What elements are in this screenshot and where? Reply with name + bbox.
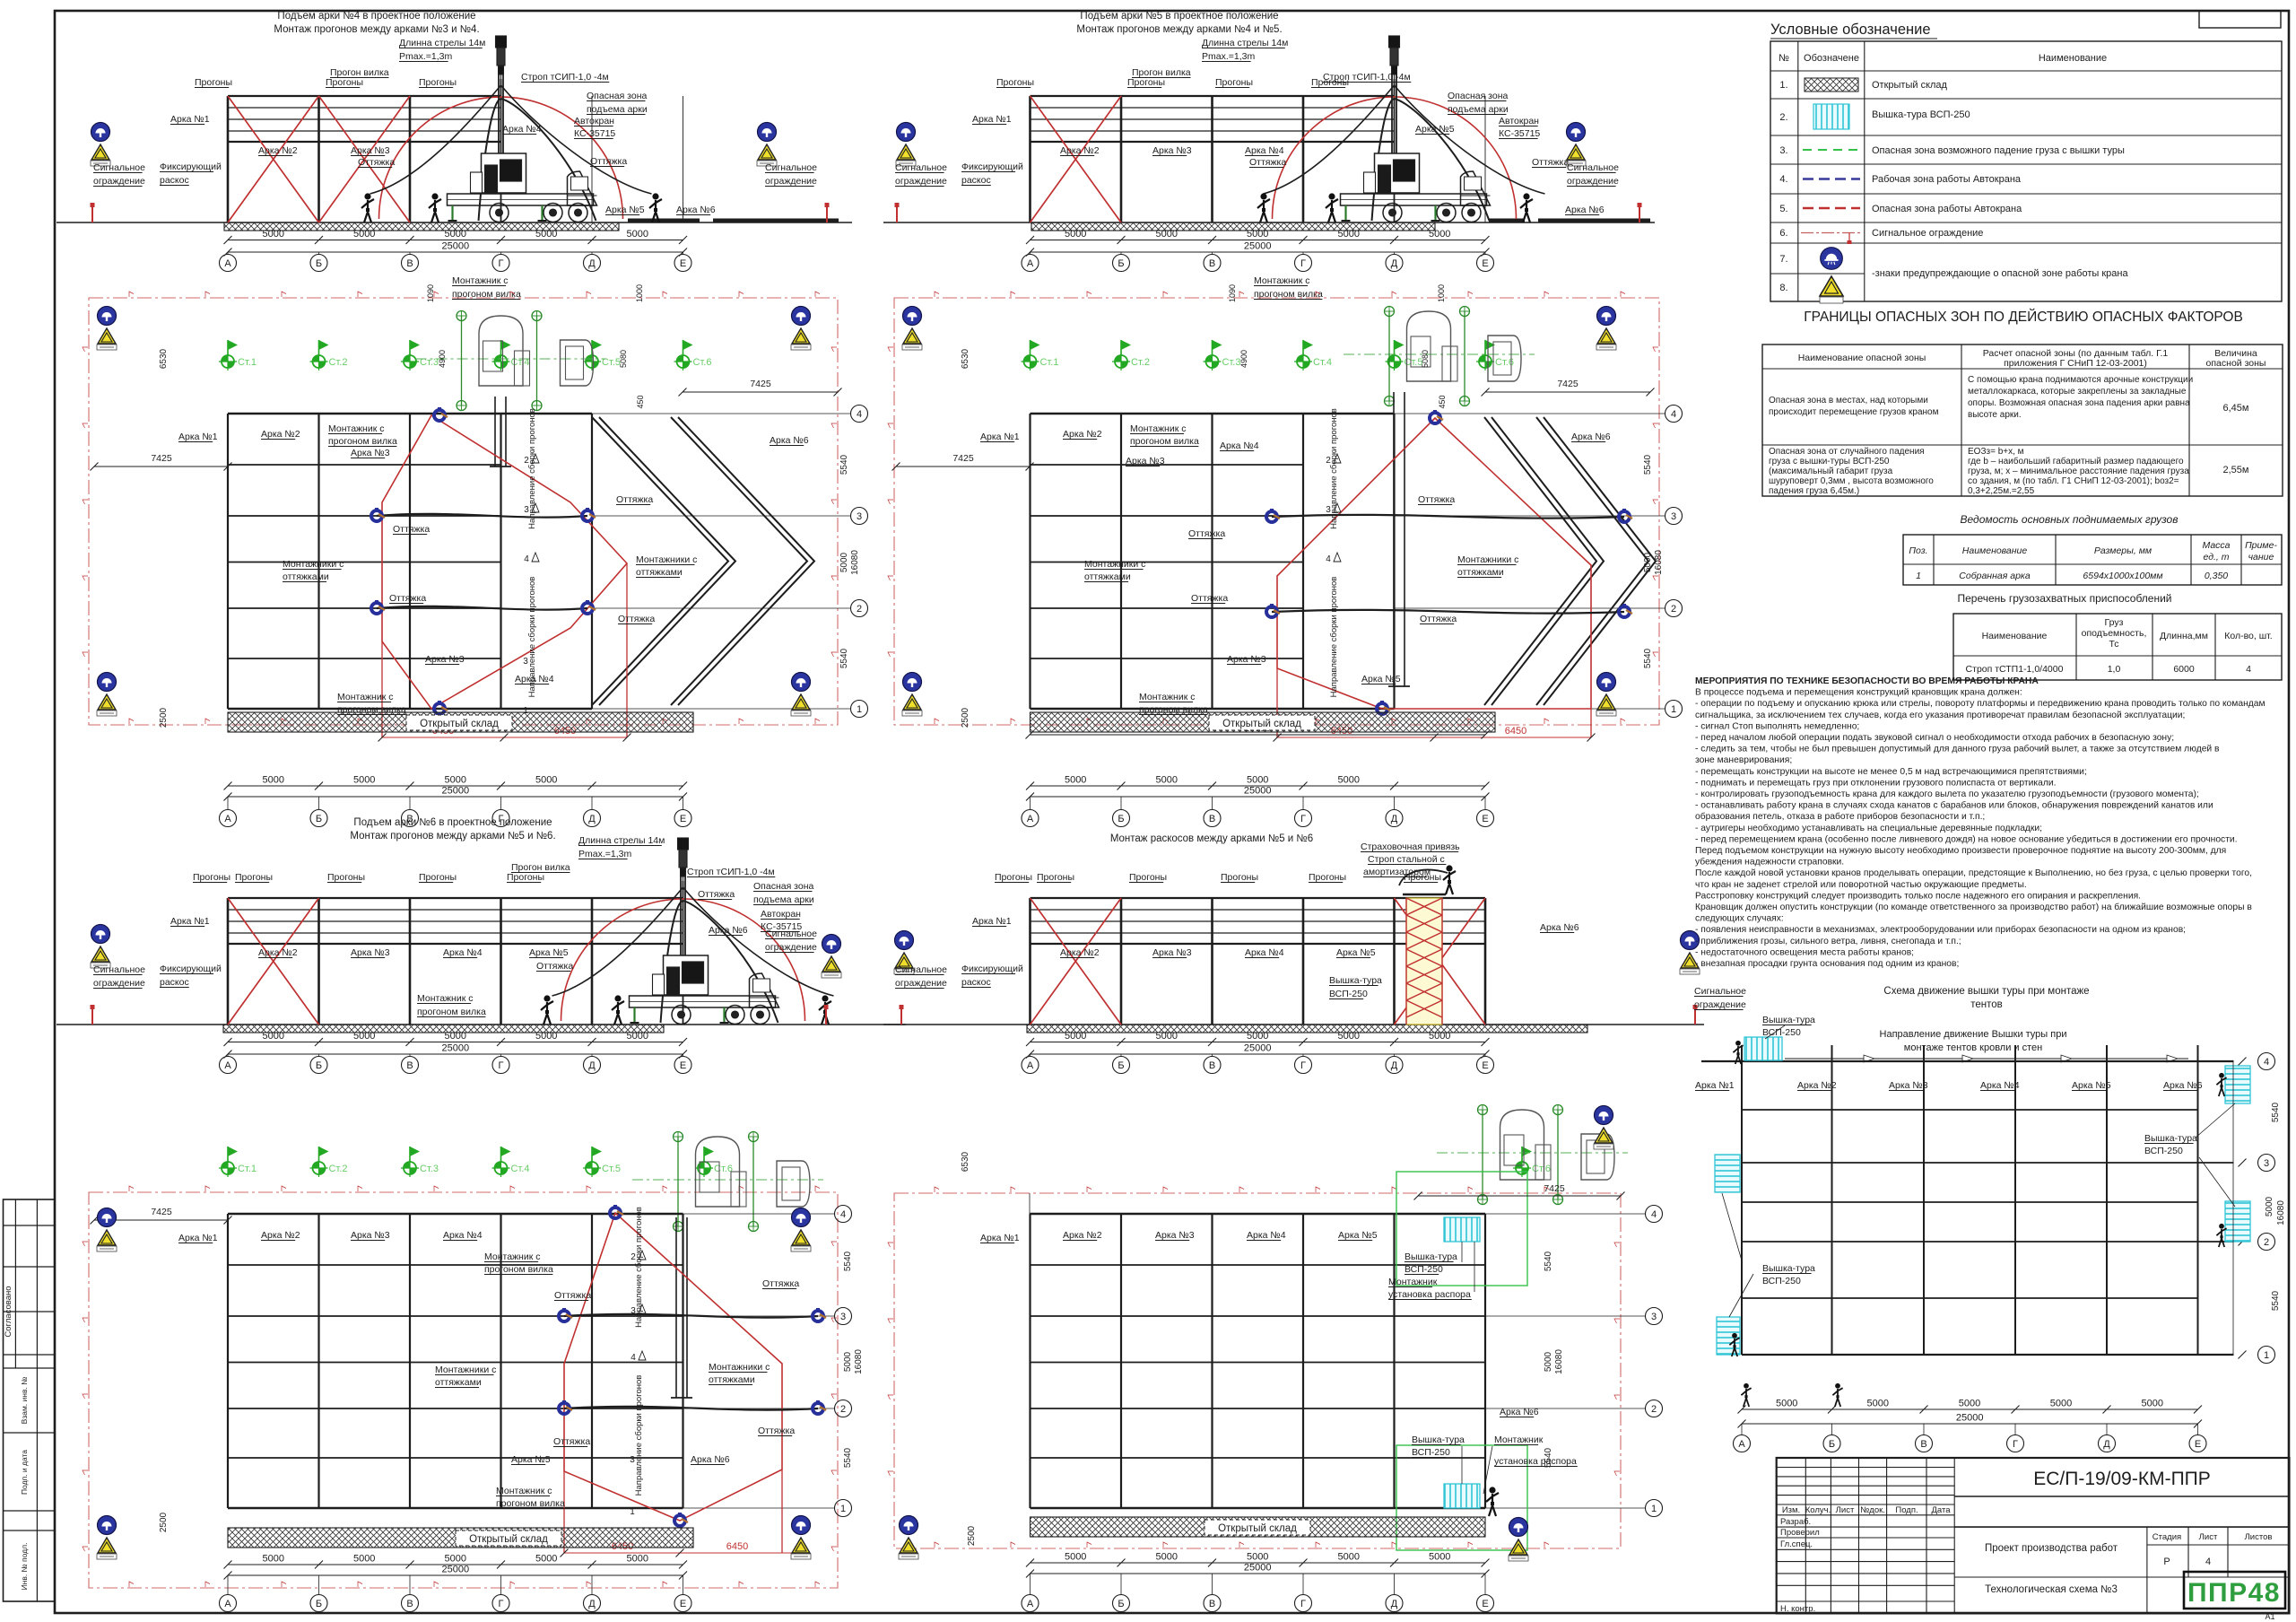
svg-text:Арка №1: Арка №1 — [178, 432, 218, 442]
svg-text:Прогоны: Прогоны — [995, 872, 1032, 883]
svg-text:оттяжками: оттяжками — [636, 567, 683, 578]
svg-text:5000: 5000 — [1065, 1031, 1086, 1042]
svg-text:Оттяжка: Оттяжка — [590, 156, 627, 167]
svg-text:ППР48: ППР48 — [2187, 1578, 2281, 1608]
svg-text:Арка №3: Арка №3 — [1152, 947, 1192, 958]
svg-text:Разраб.: Разраб. — [1780, 1517, 1811, 1527]
svg-text:5000: 5000 — [1776, 1399, 1797, 1409]
svg-text:Б: Б — [1118, 1060, 1124, 1071]
svg-text:Ст.1: Ст.1 — [1040, 357, 1059, 368]
svg-text:Д: Д — [588, 1060, 596, 1071]
svg-text:установка распора: установка распора — [1388, 1289, 1471, 1300]
svg-text:Pmax.=1,3m: Pmax.=1,3m — [1202, 51, 1255, 62]
svg-text:Арка №5: Арка №5 — [1336, 947, 1376, 958]
svg-text:5000: 5000 — [1338, 1031, 1360, 1042]
svg-text:ограждение: ограждение — [895, 176, 947, 187]
svg-text:Опасная зона: Опасная зона — [753, 881, 814, 892]
svg-text:16080: 16080 — [2276, 1200, 2286, 1225]
svg-text:Арка №2: Арка №2 — [261, 429, 300, 440]
svg-text:-знаки предупреждающие о опасн: -знаки предупреждающие о опасной зоне ра… — [1872, 268, 2128, 279]
svg-text:Автокран: Автокран — [574, 116, 614, 126]
svg-text:Ст.4: Ст.4 — [511, 1164, 530, 1174]
svg-text:Подп.: Подп. — [1895, 1505, 1918, 1515]
svg-text:опоры. Возможная опасная зона: опоры. Возможная опасная зона падения ар… — [1968, 398, 2190, 408]
svg-text:Арка №6: Арка №6 — [676, 205, 716, 215]
svg-text:Схема движение вышки туры при: Схема движение вышки туры при монтаже — [1883, 986, 2089, 997]
svg-text:Арка №1: Арка №1 — [178, 1233, 218, 1243]
svg-text:5000: 5000 — [1429, 229, 1450, 240]
svg-text:16080: 16080 — [1554, 1349, 1564, 1374]
svg-text:4: 4 — [2205, 1557, 2211, 1567]
svg-text:- недостаточного освещени: - недостаточного освещения места работы … — [1695, 946, 1914, 957]
svg-text:4: 4 — [2246, 664, 2251, 675]
svg-text:металлокаркаса, которые закреп: металлокаркаса, которые закреплены за за… — [1968, 387, 2187, 397]
svg-text:груза, м; x – минимальное расс: груза, м; x – минимальное расстояние пад… — [1968, 467, 2189, 476]
svg-text:Прогоны: Прогоны — [1037, 872, 1074, 883]
svg-text:450: 450 — [1438, 395, 1447, 408]
svg-text:Б: Б — [1118, 814, 1124, 824]
svg-text:Прогоны: Прогоны — [1309, 872, 1346, 883]
svg-text:Арка №4: Арка №4 — [1245, 947, 1284, 958]
svg-text:Сигнальное: Сигнальное — [93, 964, 145, 975]
svg-text:2500: 2500 — [159, 707, 169, 728]
svg-text:С помощью крана поднимаются ар: С помощью крана поднимаются арочные конс… — [1968, 375, 2193, 385]
svg-text:Арка №1: Арка №1 — [1695, 1080, 1735, 1091]
svg-text:А: А — [1738, 1439, 1745, 1450]
svg-text:Монтажник с: Монтажник с — [496, 1486, 552, 1496]
svg-text:25000: 25000 — [442, 1043, 470, 1054]
svg-text:Д: Д — [588, 1599, 596, 1609]
svg-text:5000: 5000 — [535, 1554, 557, 1565]
svg-text:3: 3 — [1651, 1312, 1657, 1322]
svg-text:25000: 25000 — [442, 786, 470, 797]
svg-text:Прогоны: Прогоны — [1221, 872, 1258, 883]
svg-text:5540: 5540 — [2271, 1102, 2281, 1122]
svg-text:высоте арки.: высоте арки. — [1968, 410, 2022, 420]
svg-text:2: 2 — [840, 1404, 846, 1415]
svg-text:КС-35715: КС-35715 — [1499, 128, 1540, 139]
svg-text:Арка №1: Арка №1 — [170, 916, 210, 927]
svg-text:Г: Г — [499, 258, 504, 269]
svg-text:Рабочая зона работы Автокрана: Рабочая зона работы Автокрана — [1872, 174, 2022, 185]
svg-text:2500: 2500 — [159, 1512, 169, 1532]
svg-text:Ст.2: Ст.2 — [329, 1164, 348, 1174]
svg-text:4: 4 — [524, 554, 529, 564]
svg-text:Д: Д — [1391, 1060, 1398, 1071]
svg-text:Арка №2: Арка №2 — [1063, 429, 1102, 440]
svg-text:Сигнальное: Сигнальное — [765, 162, 817, 173]
svg-text:Арка №3: Арка №3 — [351, 448, 390, 458]
svg-text:Прогоны: Прогоны — [1215, 77, 1253, 88]
svg-text:Оттяжка: Оттяжка — [1191, 593, 1228, 604]
svg-text:Оттяжка: Оттяжка — [393, 524, 430, 535]
svg-text:Арка №5: Арка №5 — [1415, 124, 1455, 135]
svg-text:Арка №3: Арка №3 — [1152, 145, 1192, 156]
svg-text:Проверил: Проверил — [1780, 1528, 1820, 1538]
svg-text:следующих случаях:: следующих случаях: — [1695, 914, 1784, 924]
svg-text:Открытый склад: Открытый склад — [1872, 80, 1948, 91]
svg-text:Арка №1: Арка №1 — [972, 916, 1012, 927]
svg-text:Е: Е — [680, 1060, 686, 1071]
svg-text:Д: Д — [2103, 1439, 2110, 1450]
svg-text:Вышка-тура: Вышка-тура — [2144, 1133, 2197, 1144]
svg-text:Арка №6: Арка №6 — [1500, 1407, 1539, 1417]
svg-text:7425: 7425 — [1557, 379, 1578, 389]
svg-text:ограждение: ограждение — [765, 942, 817, 953]
svg-text:0,350: 0,350 — [2205, 571, 2228, 581]
svg-text:4: 4 — [631, 1353, 636, 1363]
svg-text:зоне маневрирования;: зоне маневрирования; — [1695, 755, 1792, 765]
svg-text:25000: 25000 — [1244, 1043, 1272, 1054]
svg-text:Прогоны: Прогоны — [327, 872, 365, 883]
svg-text:Прогон вилка: Прогон вилка — [511, 862, 570, 873]
svg-text:Арка №3: Арка №3 — [1889, 1080, 1928, 1091]
svg-text:Оттяжка: Оттяжка — [618, 614, 655, 624]
svg-text:1: 1 — [2264, 1350, 2269, 1361]
svg-text:Сигнальное ограждение: Сигнальное ограждение — [1872, 228, 1983, 239]
svg-text:5000: 5000 — [1156, 1552, 1178, 1563]
svg-text:3: 3 — [524, 505, 529, 515]
svg-text:2: 2 — [2264, 1237, 2269, 1248]
svg-text:А: А — [1027, 1599, 1034, 1609]
svg-text:5000: 5000 — [535, 775, 557, 786]
svg-text:5000: 5000 — [2265, 1196, 2274, 1216]
svg-text:5000: 5000 — [1338, 775, 1360, 786]
svg-text:1: 1 — [1671, 704, 1676, 715]
svg-text:6594х1000х100мм: 6594х1000х100мм — [2083, 571, 2162, 581]
svg-text:раскос: раскос — [160, 175, 189, 186]
svg-text:раскос: раскос — [961, 175, 991, 186]
svg-text:А: А — [1027, 814, 1034, 824]
svg-text:Монтажник с: Монтажник с — [1254, 275, 1309, 286]
svg-text:Сигнальное: Сигнальное — [1694, 986, 1746, 997]
svg-text:Вышка-тура: Вышка-тура — [1405, 1251, 1457, 1262]
svg-text:прогоном вилка: прогоном вилка — [484, 1264, 553, 1275]
svg-text:4: 4 — [1651, 1209, 1657, 1220]
svg-text:Арка №2: Арка №2 — [1063, 1230, 1102, 1241]
svg-text:Монтаж раскосов между арками №: Монтаж раскосов между арками №5 и №6 — [1110, 833, 1313, 844]
svg-text:Сигнальное: Сигнальное — [895, 964, 947, 975]
svg-text:Изм.: Изм. — [1782, 1505, 1800, 1515]
svg-text:Монтажник с: Монтажник с — [484, 1251, 540, 1262]
svg-text:5000: 5000 — [1156, 229, 1178, 240]
svg-text:Прогоны: Прогоны — [996, 77, 1034, 88]
svg-text:ВСП-250: ВСП-250 — [2144, 1146, 2183, 1156]
svg-text:Оттяжка: Оттяжка — [553, 1436, 590, 1447]
svg-text:3: 3 — [857, 511, 862, 522]
svg-text:16080: 16080 — [850, 550, 860, 575]
svg-text:Сигнальное: Сигнальное — [895, 162, 947, 173]
svg-text:Арка №3: Арка №3 — [351, 145, 390, 156]
svg-text:Оттяжка: Оттяжка — [698, 889, 735, 900]
svg-text:3: 3 — [840, 1312, 846, 1322]
svg-text:25000: 25000 — [442, 1565, 470, 1575]
svg-text:КС-35715: КС-35715 — [574, 128, 615, 139]
svg-text:приложения Г СНиП 12-03-2001): приложения Г СНиП 12-03-2001) — [2004, 358, 2147, 369]
svg-text:7425: 7425 — [151, 453, 172, 464]
svg-text:происходит перемещение грузов: происходит перемещение грузов краном — [1769, 407, 1939, 417]
svg-text:В процессе подъема и перемещен: В процессе подъема и перемещения констру… — [1695, 688, 2022, 698]
svg-text:Прогоны: Прогоны — [419, 77, 457, 88]
svg-text:6530: 6530 — [961, 348, 970, 369]
svg-text:5000: 5000 — [445, 1031, 466, 1042]
svg-text:Монтажник с: Монтажник с — [1130, 423, 1186, 434]
svg-text:В: В — [1209, 1060, 1215, 1071]
svg-text:Условные обозначение: Условные обозначение — [1770, 22, 1931, 38]
svg-text:подъема арки: подъема арки — [753, 894, 814, 905]
svg-text:5000: 5000 — [1065, 229, 1086, 240]
svg-text:Е: Е — [680, 814, 686, 824]
svg-text:Д: Д — [1391, 258, 1398, 269]
svg-text:амортизатором: амортизатором — [1363, 867, 1431, 877]
svg-text:4: 4 — [2264, 1057, 2269, 1068]
svg-text:Взам. инв. №: Взам. инв. № — [20, 1377, 29, 1425]
svg-text:ограждение: ограждение — [93, 176, 145, 187]
svg-text:5000: 5000 — [1544, 1351, 1553, 1372]
svg-text:Арка №2: Арка №2 — [258, 947, 298, 958]
svg-text:В: В — [1209, 1599, 1215, 1609]
svg-text:Арка №6: Арка №6 — [2163, 1080, 2203, 1091]
svg-text:- контролировать грузопод: - контролировать грузоподъемность крана … — [1695, 789, 2199, 799]
svg-text:6450: 6450 — [726, 1541, 748, 1552]
svg-text:Направление сборки прогонов: Направление сборки прогонов — [1329, 577, 1339, 698]
svg-text:5000: 5000 — [1156, 1031, 1178, 1042]
svg-text:Арка №6: Арка №6 — [709, 925, 748, 936]
svg-text:оттяжками: оттяжками — [283, 571, 329, 582]
svg-text:А: А — [224, 1599, 231, 1609]
svg-text:1090: 1090 — [426, 284, 435, 302]
svg-text:ВСП-250: ВСП-250 — [1329, 989, 1368, 999]
svg-text:Арка №1: Арка №1 — [170, 114, 210, 125]
svg-text:Арка №3: Арка №3 — [351, 947, 390, 958]
svg-text:убеждения надежности страповки: убеждения надежности страповки. — [1695, 857, 1844, 868]
svg-text:- перед перемещением кран: - перед перемещением крана (особенно пос… — [1695, 833, 2238, 844]
svg-text:6530: 6530 — [159, 348, 169, 369]
svg-text:раскос: раскос — [160, 977, 189, 988]
svg-text:В: В — [1920, 1439, 1926, 1450]
svg-text:5000: 5000 — [353, 1031, 375, 1042]
svg-text:раскос: раскос — [961, 977, 991, 988]
svg-text:ограждение: ограждение — [93, 978, 145, 989]
svg-text:7.: 7. — [1779, 254, 1787, 265]
svg-text:Арка №2: Арка №2 — [261, 1230, 300, 1241]
svg-text:ограждение: ограждение — [895, 978, 947, 989]
svg-text:Б: Б — [1118, 1599, 1124, 1609]
svg-text:Опасная зона от случайного пад: Опасная зона от случайного падения — [1769, 447, 1925, 457]
svg-text:Арка №3: Арка №3 — [1155, 1230, 1195, 1241]
svg-text:5000: 5000 — [1338, 1552, 1360, 1563]
svg-text:Сигнальное: Сигнальное — [765, 929, 817, 939]
svg-text:Е: Е — [2195, 1439, 2201, 1450]
svg-text:Е: Е — [680, 1599, 686, 1609]
svg-text:Монтаж прогонов между арками №: Монтаж прогонов между арками №3 и №4. — [274, 24, 479, 35]
svg-text:450: 450 — [636, 395, 645, 408]
svg-text:А: А — [224, 1060, 231, 1071]
svg-text:В: В — [406, 814, 413, 824]
svg-text:Оттяжка: Оттяжка — [554, 1290, 591, 1301]
svg-text:Вышка-тура: Вышка-тура — [1412, 1435, 1465, 1445]
svg-text:Арка №6: Арка №6 — [770, 435, 809, 446]
svg-text:Оттяжка: Оттяжка — [389, 593, 426, 604]
svg-text:2,55м: 2,55м — [2223, 465, 2249, 475]
svg-text:ВСП-250: ВСП-250 — [1405, 1264, 1443, 1275]
svg-text:Оттяжка: Оттяжка — [1420, 614, 1457, 624]
svg-text:Арка №4: Арка №4 — [1980, 1080, 2020, 1091]
svg-text:Опасная зона: Опасная зона — [1448, 91, 1509, 101]
svg-text:Согласовано: Согласовано — [4, 1286, 13, 1337]
svg-text:Р: Р — [2163, 1557, 2170, 1567]
svg-text:Г: Г — [499, 1599, 504, 1609]
svg-text:7425: 7425 — [952, 453, 974, 464]
svg-text:Арка №5: Арка №5 — [605, 205, 645, 215]
svg-text:Арка №3: Арка №3 — [1126, 456, 1165, 467]
svg-text:падения груза 6,45м.): падения груза 6,45м.) — [1769, 486, 1859, 496]
svg-text:прогоном вилка: прогоном вилка — [417, 1007, 486, 1017]
svg-text:Арка №1: Арка №1 — [980, 1233, 1020, 1243]
svg-text:6.: 6. — [1779, 228, 1787, 239]
svg-text:5000: 5000 — [445, 775, 466, 786]
svg-text:4: 4 — [857, 409, 862, 420]
svg-text:В: В — [1209, 814, 1215, 824]
svg-text:Е: Е — [1482, 1599, 1488, 1609]
svg-text:Монтажник с: Монтажник с — [1139, 692, 1195, 702]
svg-text:1: 1 — [840, 1504, 846, 1514]
svg-text:Приме-: Приме- — [2245, 540, 2277, 551]
svg-text:4.: 4. — [1779, 174, 1787, 185]
svg-text:Монтажники с: Монтажники с — [1457, 554, 1518, 565]
svg-text:Открытый склад: Открытый склад — [469, 1534, 548, 1545]
svg-text:Монтажники с: Монтажники с — [636, 554, 697, 565]
svg-text:5540: 5540 — [843, 1251, 853, 1271]
svg-text:Pmax.=1,3m: Pmax.=1,3m — [578, 849, 631, 859]
svg-text:прогоном вилка: прогоном вилка — [1139, 704, 1208, 715]
svg-text:Монтажник с: Монтажник с — [328, 423, 384, 434]
svg-text:5000: 5000 — [263, 229, 284, 240]
svg-text:5080: 5080 — [1421, 350, 1430, 368]
svg-text:16080: 16080 — [1654, 550, 1664, 575]
svg-text:ед., т: ед., т — [2203, 552, 2229, 562]
svg-text:5080: 5080 — [619, 350, 628, 368]
svg-text:5000: 5000 — [2050, 1399, 2072, 1409]
svg-text:Ст.4: Ст.4 — [1313, 357, 1332, 368]
svg-text:5000: 5000 — [1247, 775, 1268, 786]
svg-text:7425: 7425 — [151, 1207, 172, 1217]
svg-text:- появления неисправности: - появления неисправности в механизмах, … — [1695, 924, 2186, 935]
svg-text:Оттяжка: Оттяжка — [1532, 157, 1569, 168]
svg-text:Фиксирующий: Фиксирующий — [961, 964, 1023, 974]
svg-text:Арка №4: Арка №4 — [443, 1230, 483, 1241]
svg-text:2: 2 — [524, 456, 529, 466]
svg-text:- следить за тем, чтобы н: - следить за тем, чтобы не был превышен … — [1695, 744, 2220, 754]
svg-text:Г: Г — [1300, 814, 1306, 824]
svg-text:Прогоны: Прогоны — [235, 872, 273, 883]
svg-text:- перемещать конструкции: - перемещать конструкции на высоте не ме… — [1695, 767, 2087, 777]
svg-text:Кол-во, шт.: Кол-во, шт. — [2224, 631, 2272, 641]
svg-text:Б: Б — [316, 814, 322, 824]
svg-text:Длинна стрелы 14м: Длинна стрелы 14м — [399, 38, 485, 48]
svg-text:Ст.1: Ст.1 — [238, 1164, 257, 1174]
svg-text:Поз.: Поз. — [1909, 545, 1927, 556]
svg-text:Прогоны: Прогоны — [419, 872, 457, 883]
svg-text:Наименование: Наименование — [2039, 53, 2107, 64]
svg-text:(максимальный габарит груза: (максимальный габарит груза — [1769, 466, 1893, 476]
svg-text:Оттяжка: Оттяжка — [616, 494, 653, 505]
svg-text:Арка №5: Арка №5 — [2072, 1080, 2111, 1091]
svg-text:Длинна стрелы 14м: Длинна стрелы 14м — [578, 835, 665, 846]
svg-text:- приближения грозы, силь: - приближения грозы, сильного ветра, лив… — [1695, 936, 1961, 946]
svg-text:5000: 5000 — [1959, 1399, 1980, 1409]
svg-text:Наименование: Наименование — [1962, 545, 2028, 556]
svg-text:Подп. и дата: Подп. и дата — [20, 1450, 29, 1495]
svg-text:Направление сборки прогонов: Направление сборки прогонов — [634, 1375, 644, 1496]
svg-text:Б: Б — [316, 258, 322, 269]
svg-text:4: 4 — [1326, 554, 1331, 564]
svg-text:подъема арки: подъема арки — [587, 104, 648, 115]
svg-text:Прогоны: Прогоны — [195, 77, 232, 88]
svg-text:Б: Б — [316, 1060, 322, 1071]
svg-text:со здания, м (по табл. Г1 СНиП: со здания, м (по табл. Г1 СНиП 12-03-200… — [1968, 475, 2179, 486]
svg-text:Проект производства работ: Проект производства работ — [1985, 1543, 2118, 1554]
svg-text:Опасная зона возможного падени: Опасная зона возможного падение груза с … — [1872, 145, 2125, 156]
svg-text:5000: 5000 — [1247, 1031, 1268, 1042]
svg-text:Ст.5: Ст.5 — [602, 1164, 621, 1174]
svg-text:Арка №5: Арка №5 — [1338, 1230, 1378, 1241]
svg-text:5000: 5000 — [1247, 229, 1268, 240]
svg-text:прогоном вилка: прогоном вилка — [328, 436, 397, 447]
svg-text:Наименование опасной зоны: Наименование опасной зоны — [1798, 353, 1926, 363]
svg-text:7425: 7425 — [1544, 1183, 1565, 1194]
svg-text:Фиксирующий: Фиксирующий — [160, 964, 222, 974]
svg-text:Подъем арки №5 в проектное пол: Подъем арки №5 в проектное положение — [1080, 11, 1278, 22]
svg-text:5000: 5000 — [535, 229, 557, 240]
svg-text:3: 3 — [1326, 505, 1331, 515]
svg-text:Длинна,мм: Длинна,мм — [2160, 631, 2208, 641]
svg-text:5000: 5000 — [1429, 1031, 1450, 1042]
svg-text:В: В — [406, 1599, 413, 1609]
svg-text:Монтажники с: Монтажники с — [1084, 559, 1145, 570]
svg-text:ВСП-250: ВСП-250 — [1762, 1276, 1801, 1286]
svg-text:Монтажник с: Монтажник с — [452, 275, 508, 286]
svg-text:Технологическая схема №3: Технологическая схема №3 — [1985, 1584, 2118, 1595]
svg-text:ВСП-250: ВСП-250 — [1412, 1447, 1450, 1458]
svg-text:Оттяжка: Оттяжка — [1418, 494, 1455, 505]
svg-text:№док.: №док. — [1860, 1505, 1885, 1515]
svg-text:Оттяжка: Оттяжка — [758, 1426, 795, 1436]
svg-text:Стадия: Стадия — [2152, 1532, 2181, 1542]
svg-text:5000: 5000 — [843, 1351, 853, 1372]
svg-text:Прогоны: Прогоны — [1129, 872, 1167, 883]
svg-text:Арка №2: Арка №2 — [1797, 1080, 1837, 1091]
svg-text:Арка №2: Арка №2 — [1060, 947, 1100, 958]
svg-text:2: 2 — [1671, 604, 1676, 615]
svg-text:опасной зоны: опасной зоны — [2206, 358, 2266, 369]
svg-text:Арка №2: Арка №2 — [258, 145, 298, 156]
svg-text:Собранная арка: Собранная арка — [1959, 571, 2031, 581]
svg-text:1000: 1000 — [635, 284, 644, 302]
svg-text:Монтаж прогонов между арками №: Монтаж прогонов между арками №5 и №6. — [350, 831, 555, 842]
svg-text:4: 4 — [840, 1209, 846, 1220]
svg-text:Лист: Лист — [2199, 1532, 2218, 1542]
svg-text:тентов: тентов — [1970, 999, 2003, 1010]
svg-text:Монтажник с: Монтажник с — [337, 692, 393, 702]
svg-text:Е: Е — [1482, 1060, 1488, 1071]
svg-text:5000: 5000 — [1247, 1552, 1268, 1563]
svg-text:Арка №4: Арка №4 — [515, 674, 554, 685]
svg-text:Д: Д — [1391, 1599, 1398, 1609]
svg-text:оттяжками: оттяжками — [1457, 567, 1504, 578]
svg-text:5000: 5000 — [445, 229, 466, 240]
svg-text:Ст.6: Ст.6 — [1532, 1164, 1551, 1174]
